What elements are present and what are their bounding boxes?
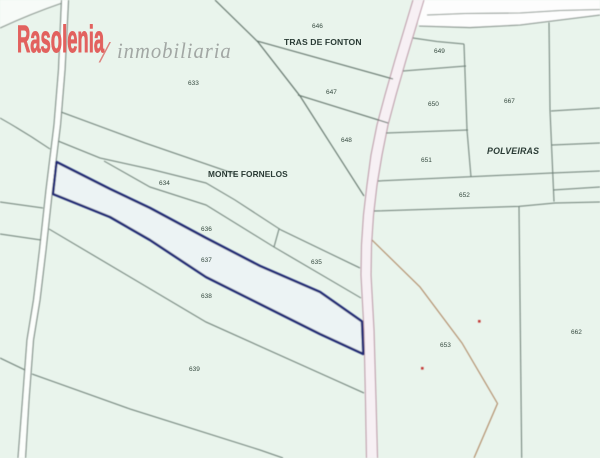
svg-text:634: 634	[159, 180, 170, 187]
svg-text:649: 649	[434, 48, 445, 55]
svg-text:667: 667	[504, 98, 515, 105]
svg-text:635: 635	[311, 259, 322, 266]
svg-text:MONTE FORNELOS: MONTE FORNELOS	[208, 169, 288, 179]
svg-text:653: 653	[440, 342, 451, 349]
svg-text:646: 646	[312, 23, 323, 30]
svg-text:638: 638	[201, 293, 212, 300]
svg-text:648: 648	[341, 137, 352, 144]
svg-text:651: 651	[421, 157, 432, 164]
svg-text:662: 662	[571, 329, 582, 336]
svg-text:637: 637	[201, 257, 212, 264]
svg-text:636: 636	[201, 226, 212, 233]
svg-text:POLVEIRAS: POLVEIRAS	[487, 146, 539, 156]
svg-text:TRAS DE FONTON: TRAS DE FONTON	[284, 37, 362, 47]
svg-text:652: 652	[459, 192, 470, 199]
svg-text:639: 639	[189, 366, 200, 373]
svg-text:647: 647	[326, 89, 337, 96]
svg-text:650: 650	[428, 101, 439, 108]
svg-text:633: 633	[188, 80, 199, 87]
